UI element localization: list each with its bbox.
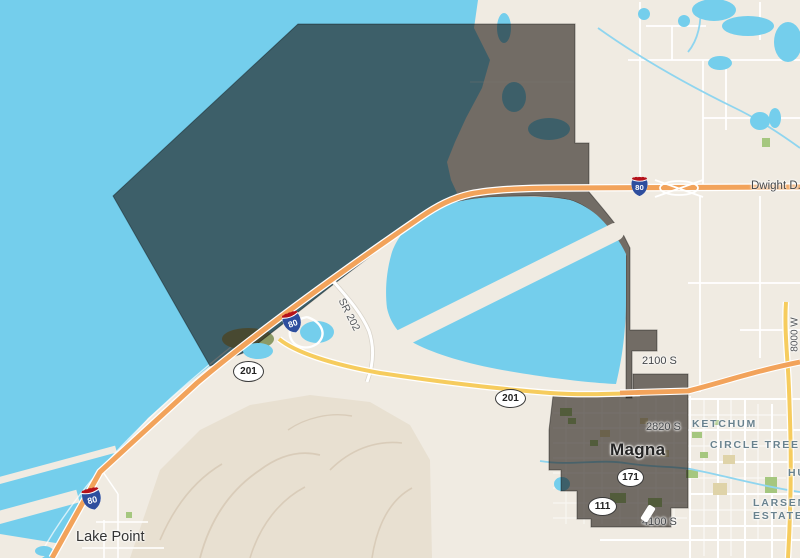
neighborhood-label-ketchum: KETCHUM [692, 418, 757, 430]
neighborhood-label-larsen-estates: LARSEN ESTATES [753, 497, 800, 522]
route-201-shield-east: 201 [495, 389, 526, 408]
neighborhood-label-hunter-partial: HU [788, 467, 800, 479]
route-171-number: 171 [622, 472, 639, 483]
neighborhood-label-circle-tree: CIRCLE TREE [710, 439, 800, 451]
route-201-west-number: 201 [240, 366, 257, 377]
route-111-shield: 111 [588, 497, 617, 516]
larsen-line2: ESTATES [753, 510, 800, 523]
route-111-number: 111 [595, 501, 611, 512]
route-171-shield: 171 [617, 468, 644, 487]
street-label-2820s: 2820 S [646, 421, 681, 433]
larsen-line1: LARSEN [753, 497, 800, 510]
street-label-2100s: 2100 S [642, 355, 677, 367]
route-201-shield-west: 201 [233, 361, 264, 382]
town-label-lake-point: Lake Point [76, 529, 145, 545]
base-map-svg [0, 0, 800, 558]
street-label-8000w: 8000 W [790, 313, 800, 357]
route-201-east-number: 201 [502, 393, 519, 404]
i80-shield-east-number: 80 [635, 183, 644, 192]
small-bay [300, 321, 334, 343]
road-label-dwight: Dwight D. [751, 180, 800, 192]
city-label-magna: Magna [610, 440, 665, 460]
i80-shield-east: 80 [630, 176, 649, 197]
map-canvas[interactable]: Dwight D. SR 202 2100 S 2820 S 4100 S 80… [0, 0, 800, 558]
